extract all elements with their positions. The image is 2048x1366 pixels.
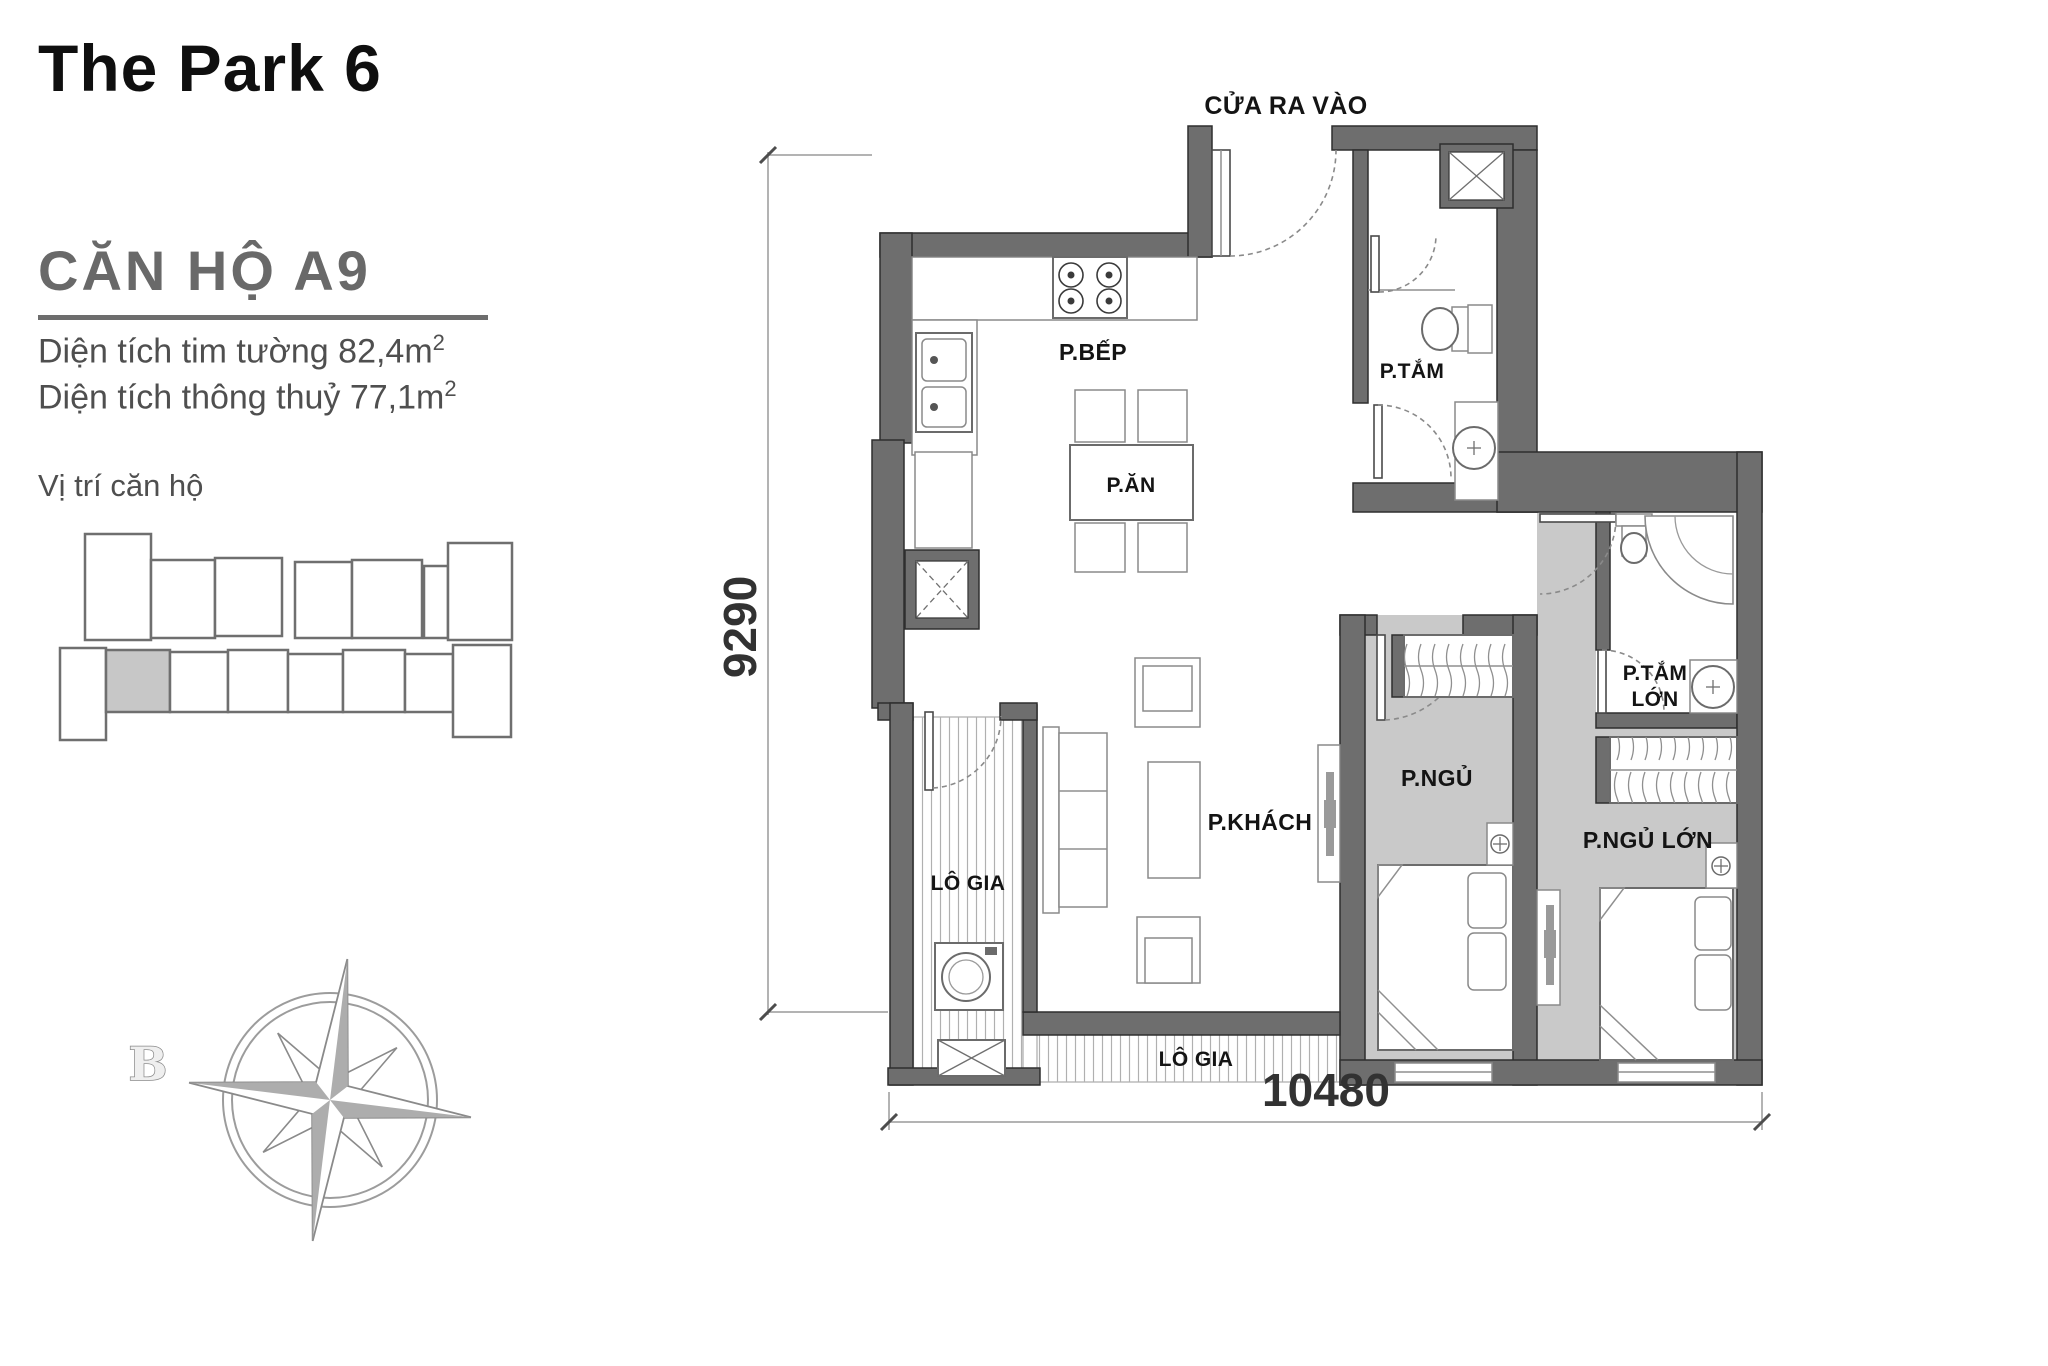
label-master-bedroom: P.NGỦ LỚN: [1583, 825, 1713, 853]
label-master-bath-2: LỚN: [1631, 687, 1678, 711]
label-living: P.KHÁCH: [1208, 808, 1313, 835]
bed-bedroom1: [1378, 865, 1513, 1050]
compass-rose-icon: B: [129, 942, 489, 1258]
label-loggia-left: LÔ GIA: [931, 871, 1006, 895]
label-master-bath-1: P.TẮM: [1623, 661, 1688, 685]
armchair-bottom: [1137, 917, 1200, 983]
nightstand-bedroom1: [1487, 823, 1513, 865]
wardrobe-master: [1610, 737, 1737, 803]
shower-icon: [1645, 516, 1733, 604]
label-bedroom: P.NGỦ: [1401, 763, 1473, 791]
ac-unit-icon: [938, 1040, 1005, 1076]
armchair-top: [1135, 658, 1200, 727]
wardrobe-bedroom1: [1404, 635, 1513, 697]
label-kitchen: P.BẾP: [1059, 338, 1127, 365]
building-locator-diagram: [60, 534, 512, 740]
kitchen-cabinet: [915, 452, 972, 548]
entrance-door: [1212, 150, 1336, 256]
sink-icon: [916, 333, 972, 432]
dimension-height: 9290: [714, 147, 888, 1020]
label-entrance: CỬA RA VÀO: [1204, 90, 1367, 120]
label-dining: P.ĂN: [1106, 474, 1155, 497]
dimension-height-value: 9290: [714, 576, 766, 678]
shaft-icon-dining: [905, 550, 979, 629]
lavabo-icon-master: [1690, 660, 1737, 713]
tv-cabinet-master: [1537, 890, 1560, 1005]
coffee-table: [1148, 762, 1200, 878]
floor-plan-svg: B: [0, 0, 2048, 1366]
sofa: [1043, 727, 1107, 913]
tv-cabinet-living: [1318, 745, 1340, 882]
stove-icon: [1053, 257, 1127, 318]
washing-machine-icon: [935, 943, 1003, 1010]
bed-master: [1600, 888, 1733, 1060]
label-bathroom: P.TẮM: [1380, 359, 1445, 383]
compass-north-letter: B: [129, 1037, 168, 1091]
floor-plan-page: The Park 6 CĂN HỘ A9 Diện tích tim tường…: [0, 0, 2048, 1366]
lavabo-icon: [1453, 402, 1498, 500]
label-loggia-bottom: LÔ GIA: [1159, 1047, 1234, 1071]
dimension-width-value: 10480: [1262, 1064, 1390, 1116]
shaft-icon-entry: [1440, 144, 1513, 208]
toilet-icon: [1422, 305, 1492, 353]
highlighted-unit-a9: [106, 650, 170, 712]
